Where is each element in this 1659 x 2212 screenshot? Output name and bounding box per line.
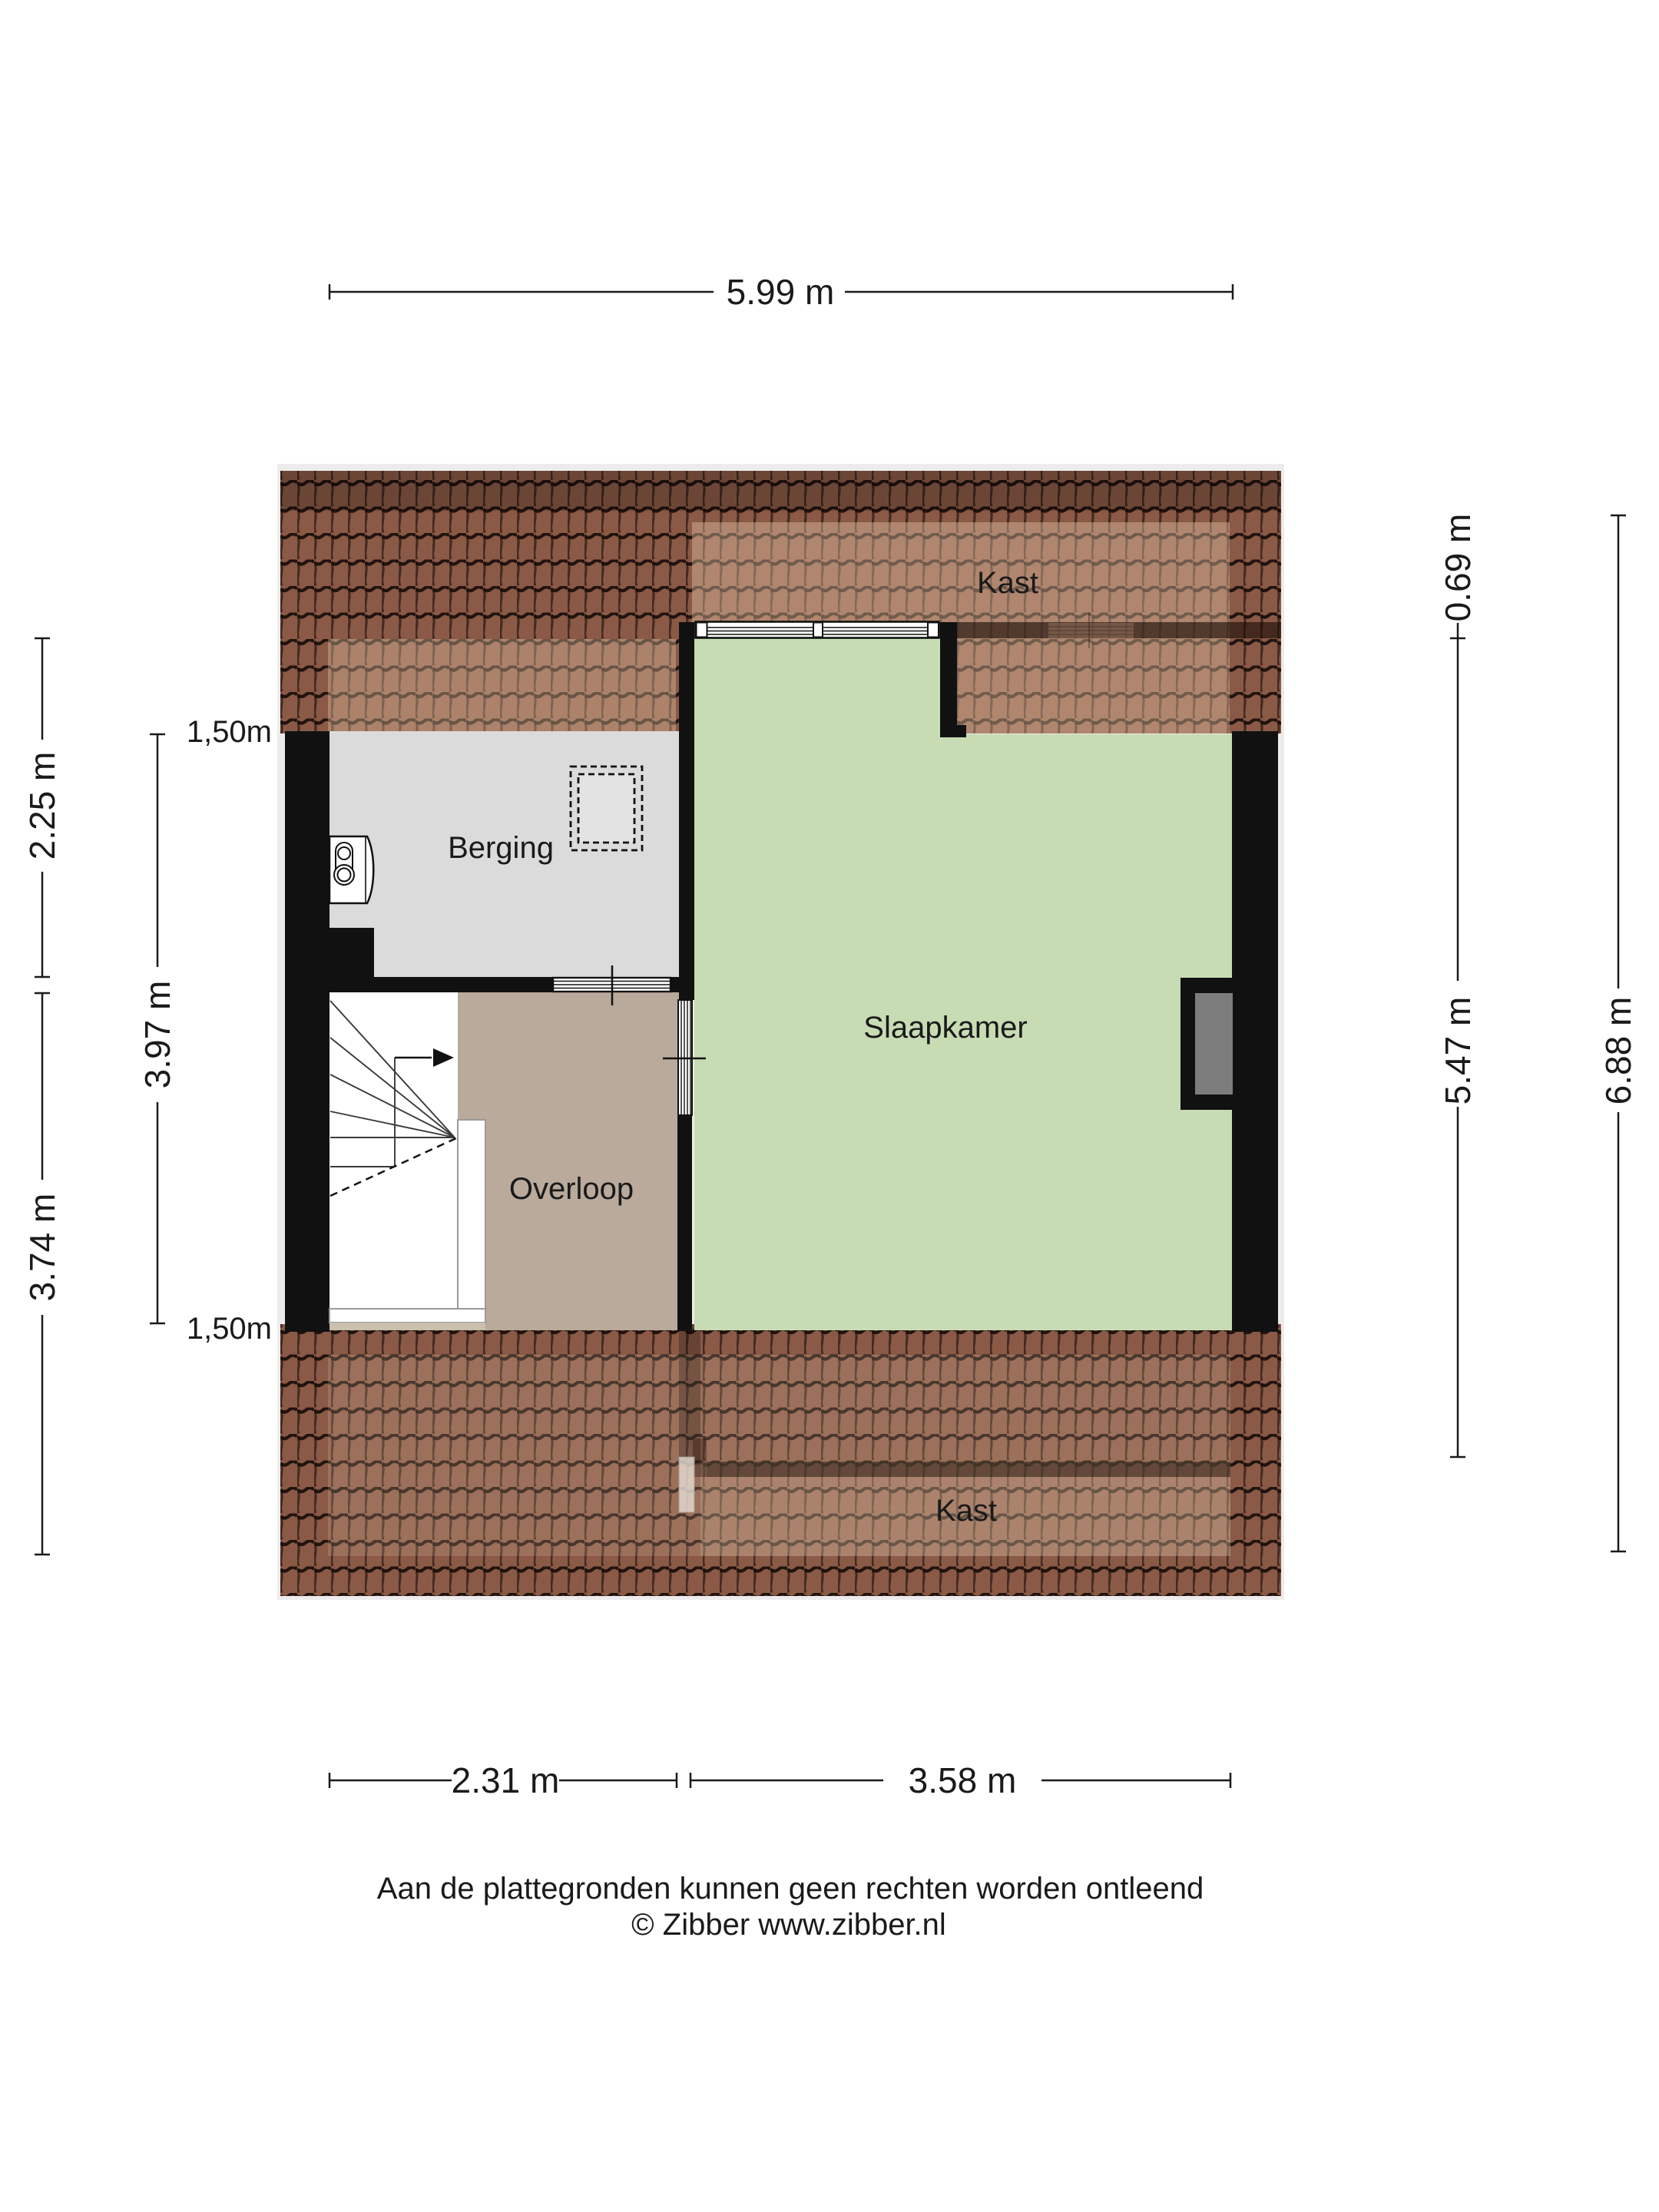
svg-text:Slaapkamer: Slaapkamer (863, 1011, 1027, 1045)
svg-text:Kast: Kast (935, 1494, 997, 1528)
svg-text:© Zibber www.zibber.nl: © Zibber www.zibber.nl (631, 1908, 946, 1942)
svg-text:5.99 m: 5.99 m (727, 272, 835, 312)
svg-text:Berging: Berging (448, 831, 554, 865)
svg-text:1,50m: 1,50m (187, 715, 272, 749)
svg-text:2.25 m: 2.25 m (22, 752, 62, 860)
svg-text:3.58 m: 3.58 m (909, 1760, 1017, 1800)
svg-text:3.74 m: 3.74 m (22, 1194, 62, 1302)
svg-text:Kast: Kast (977, 566, 1038, 600)
svg-text:5.47 m: 5.47 m (1438, 997, 1478, 1105)
svg-text:Overloop: Overloop (509, 1172, 634, 1206)
svg-text:Aan de plattegronden kunnen ge: Aan de plattegronden kunnen geen rechten… (377, 1872, 1204, 1906)
svg-text:3.97 m: 3.97 m (137, 981, 177, 1089)
svg-text:0.69 m: 0.69 m (1438, 514, 1478, 622)
svg-text:1,50m: 1,50m (187, 1312, 272, 1346)
svg-text:6.88 m: 6.88 m (1598, 997, 1638, 1105)
svg-text:2.31 m: 2.31 m (452, 1760, 560, 1800)
